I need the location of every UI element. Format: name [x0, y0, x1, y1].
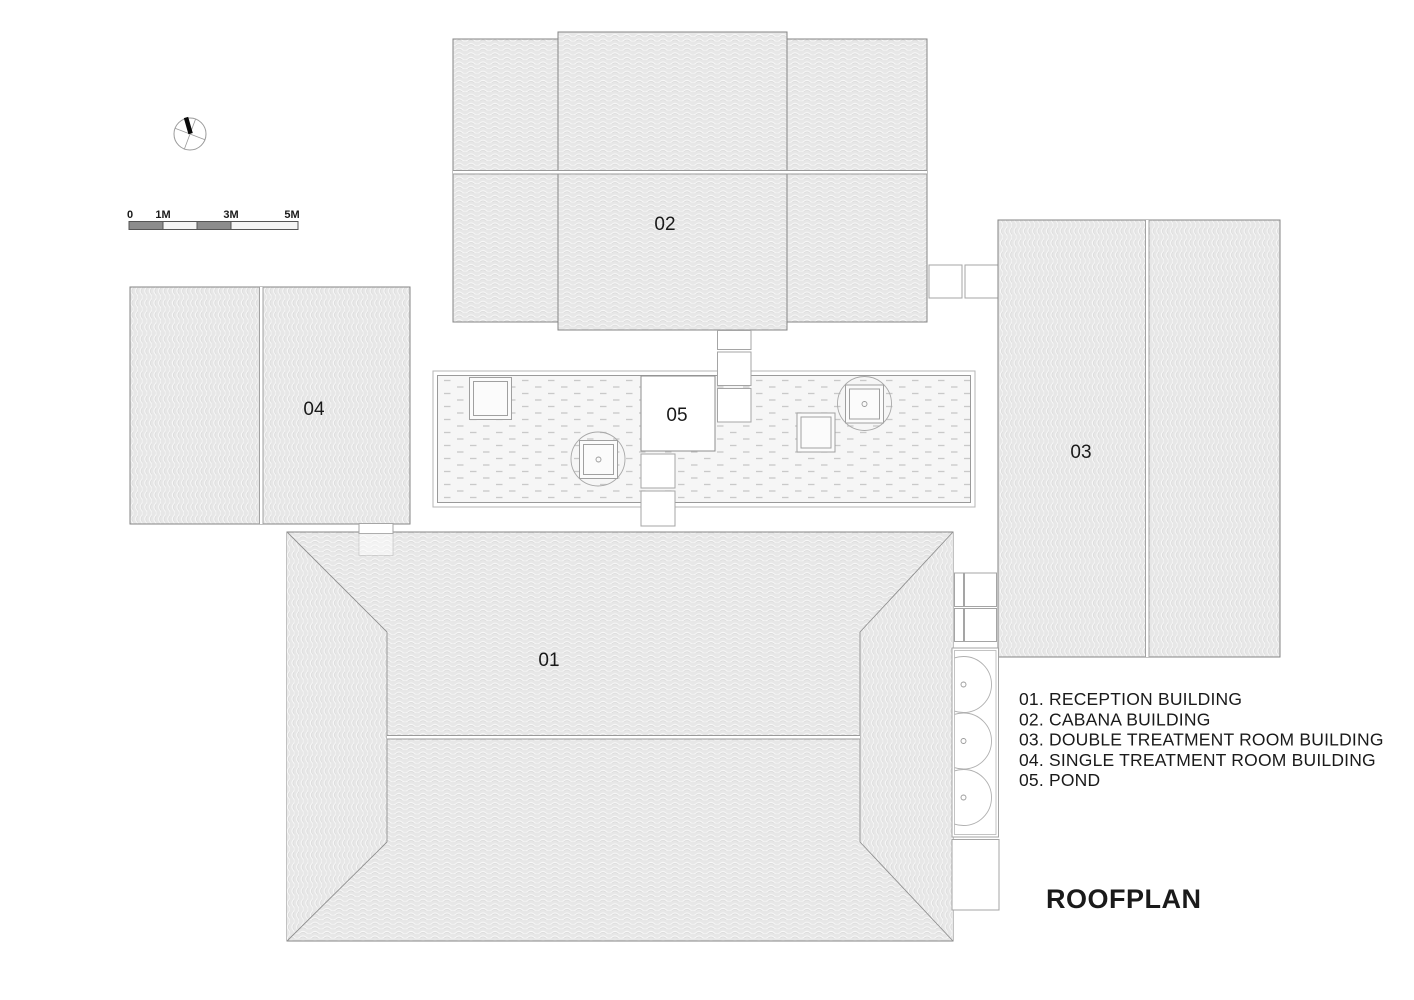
legend-item-04: 04. SINGLE TREATMENT ROOM BUILDING	[1019, 750, 1376, 770]
drawing-title: ROOFPLAN	[1046, 884, 1202, 914]
building-04-label: 04	[303, 399, 325, 420]
scale-segment-dark	[197, 222, 231, 230]
service-box-bottom	[952, 840, 999, 911]
ridge-line	[260, 287, 264, 524]
scale-label-3m: 3M	[223, 209, 238, 221]
north-arrow-icon	[174, 118, 206, 151]
pond-square	[797, 413, 835, 452]
pond-planter-square	[470, 378, 512, 420]
service-grid	[955, 573, 997, 642]
scale-label-5m: 5M	[284, 209, 299, 221]
building-03-label: 03	[1070, 442, 1091, 463]
scale-label-1m: 1M	[155, 209, 170, 221]
connector-squares-02-03	[929, 265, 998, 298]
pond-tree-planter-left	[571, 432, 625, 486]
ridge-line	[453, 171, 927, 175]
building-01-roof	[287, 532, 953, 941]
ridge-line	[387, 736, 860, 740]
legend-item-03: 03. DOUBLE TREATMENT ROOM BUILDING	[1019, 730, 1384, 750]
scale-bar: 0 1M 3M 5M	[127, 209, 300, 230]
building-02-label: 02	[654, 214, 675, 235]
legend: 01. RECEPTION BUILDING 02. CABANA BUILDI…	[1019, 689, 1384, 790]
roofplan-canvas: 0 1M 3M 5M 02 04 03	[0, 0, 1414, 1000]
pond-label: 05	[666, 405, 687, 426]
pond-tree-planter-right	[838, 377, 892, 431]
connector-04-01	[359, 524, 393, 556]
roofplan-drawing: 0 1M 3M 5M 02 04 03	[0, 0, 1414, 1000]
building-02-roof	[453, 32, 927, 330]
building-04-roof	[130, 287, 410, 524]
ridge-line	[1146, 220, 1150, 657]
legend-item-02: 02. CABANA BUILDING	[1019, 709, 1211, 729]
scale-segment-dark	[129, 222, 163, 230]
scale-label-0: 0	[127, 209, 133, 221]
pond	[433, 371, 975, 507]
building-01-label: 01	[538, 650, 559, 671]
legend-item-01: 01. RECEPTION BUILDING	[1019, 689, 1242, 709]
building-03-roof	[998, 220, 1280, 657]
legend-item-05: 05. POND	[1019, 770, 1100, 790]
